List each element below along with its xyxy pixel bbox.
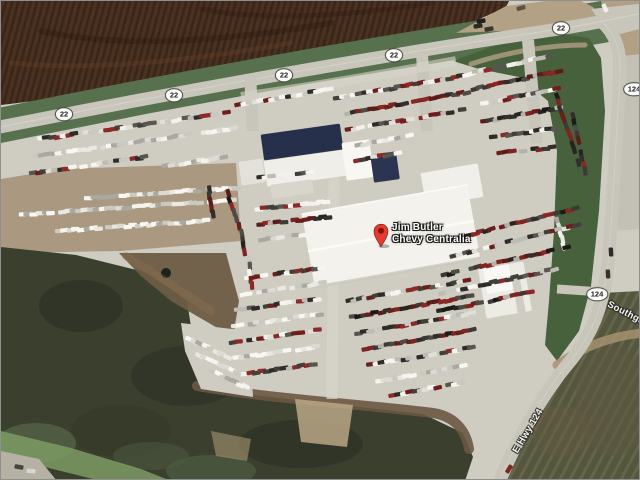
map-pin-label[interactable]: Jim Butler Chevy Centralia: [392, 222, 471, 246]
route-shield-22-2: 22: [165, 88, 183, 102]
route-shield-124-1: 124: [623, 82, 640, 96]
route-shield-22-5: 22: [552, 21, 570, 35]
map-labels-layer: 22 22 22 22 22 124 124 E Hwy 124 Southga…: [1, 1, 639, 479]
map-pin-icon: [371, 218, 391, 248]
satellite-map[interactable]: 22 22 22 22 22 124 124 E Hwy 124 Southga…: [0, 0, 640, 480]
route-shield-22-3: 22: [275, 68, 293, 82]
route-shield-124-2: 124: [586, 287, 608, 301]
route-shield-22-1: 22: [55, 107, 73, 121]
map-pin[interactable]: [371, 218, 391, 248]
pin-label-line1: Jim Butler: [392, 222, 471, 234]
road-label-e-hwy-124: E Hwy 124: [510, 407, 545, 455]
road-label-southgate: Southgate: [606, 299, 640, 331]
route-shield-22-4: 22: [385, 48, 403, 62]
pin-label-line2: Chevy Centralia: [392, 234, 471, 246]
